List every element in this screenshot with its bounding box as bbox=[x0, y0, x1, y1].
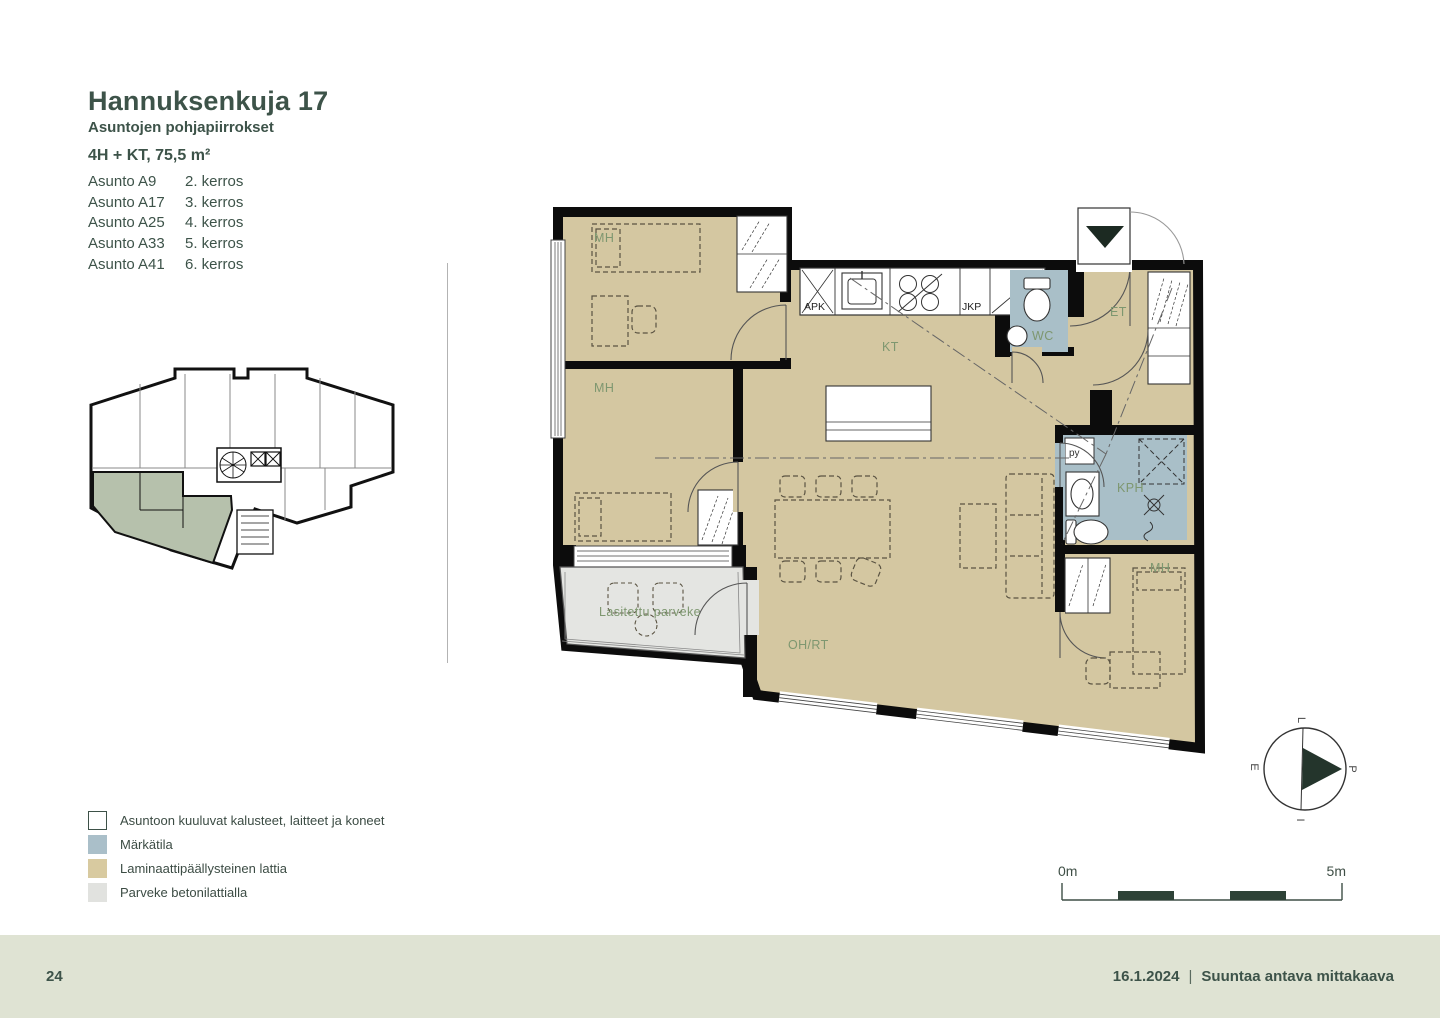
footer-date: 16.1.2024 bbox=[1113, 968, 1180, 985]
legend-item: Parveke betonilattialla bbox=[88, 880, 385, 904]
apartment-name: Asunto A33 bbox=[88, 234, 185, 255]
page-title: Hannuksenkuja 17 bbox=[88, 86, 328, 117]
hall-wardrobe bbox=[1148, 272, 1190, 384]
apartment-list: Asunto A9 2. kerros Asunto A17 3. kerros… bbox=[88, 172, 243, 276]
footer-note: Suuntaa antava mittakaava bbox=[1201, 968, 1394, 985]
footer: 24 16.1.2024 | Suuntaa antava mittakaava bbox=[0, 935, 1440, 1018]
apartment-type: 4H + KT, 75,5 m² bbox=[88, 147, 210, 165]
apartment-list-item: Asunto A33 5. kerros bbox=[88, 234, 243, 255]
room-label-et: ET bbox=[1110, 305, 1127, 319]
scale-bar: 0m 5m bbox=[1052, 858, 1352, 904]
apartment-floor: 4. kerros bbox=[185, 213, 243, 234]
legend-label: Laminaattipäällysteinen lattia bbox=[120, 861, 287, 876]
scale-end-label: 5m bbox=[1327, 863, 1346, 879]
legend: Asuntoon kuuluvat kalusteet, laitteet ja… bbox=[88, 808, 385, 904]
apartment-name: Asunto A17 bbox=[88, 193, 185, 214]
legend-item: Laminaattipäällysteinen lattia bbox=[88, 856, 385, 880]
mh2-wardrobe bbox=[698, 490, 738, 545]
room-label-mh1: MH bbox=[594, 231, 614, 245]
mh1-wardrobe bbox=[737, 216, 787, 292]
window-west bbox=[551, 240, 565, 438]
legend-label: Asuntoon kuuluvat kalusteet, laitteet ja… bbox=[120, 813, 385, 828]
page-number: 24 bbox=[46, 968, 63, 985]
floor-plan: MH MH KT WC ET KPH MH OH/RT APK JKP py L… bbox=[550, 200, 1210, 755]
compass-south-label: E bbox=[1248, 763, 1260, 770]
room-label-mh2: MH bbox=[594, 381, 614, 395]
building-overview-plan bbox=[85, 360, 400, 578]
legend-swatch-fixtures bbox=[88, 811, 107, 830]
legend-swatch-wet-room bbox=[88, 835, 107, 854]
room-label-ohrt: OH/RT bbox=[788, 638, 829, 652]
room-label-kph: KPH bbox=[1117, 481, 1144, 495]
apartment-list-item: Asunto A25 4. kerros bbox=[88, 213, 243, 234]
apartment-name: Asunto A25 bbox=[88, 213, 185, 234]
compass-icon: P L E I bbox=[1245, 712, 1375, 830]
apartment-floor: 3. kerros bbox=[185, 193, 243, 214]
compass-north-label: P bbox=[1346, 765, 1358, 772]
room-label-mh3: MH bbox=[1150, 561, 1170, 575]
column-divider bbox=[447, 263, 448, 663]
legend-swatch-balcony bbox=[88, 883, 107, 902]
label-jkp: JKP bbox=[962, 301, 981, 313]
kitchen-counter bbox=[800, 268, 1045, 315]
apartment-floor: 6. kerros bbox=[185, 255, 243, 276]
label-py: py bbox=[1069, 448, 1080, 459]
room-label-kt: KT bbox=[882, 340, 899, 354]
label-apk: APK bbox=[804, 301, 825, 313]
compass-west-label: L bbox=[1295, 717, 1307, 723]
legend-item: Asuntoon kuuluvat kalusteet, laitteet ja… bbox=[88, 808, 385, 832]
legend-label: Parveke betonilattialla bbox=[120, 885, 247, 900]
window-balcony-wall bbox=[574, 546, 732, 567]
apartment-list-item: Asunto A9 2. kerros bbox=[88, 172, 243, 193]
legend-label: Märkätila bbox=[120, 837, 173, 852]
mh3-closet bbox=[1065, 558, 1110, 613]
apartment-name: Asunto A9 bbox=[88, 172, 185, 193]
apartment-list-item: Asunto A17 3. kerros bbox=[88, 193, 243, 214]
kitchen-island bbox=[826, 386, 931, 441]
room-label-wc: WC bbox=[1032, 329, 1054, 343]
legend-item: Märkätila bbox=[88, 832, 385, 856]
wc-sink-icon bbox=[1007, 326, 1027, 346]
compass-east-label: I bbox=[1294, 818, 1306, 821]
label-balcony: Lasitettu parveke bbox=[599, 605, 701, 619]
legend-swatch-laminate bbox=[88, 859, 107, 878]
apartment-floor: 5. kerros bbox=[185, 234, 243, 255]
page-subtitle: Asuntojen pohjapiirrokset bbox=[88, 119, 274, 136]
scale-start-label: 0m bbox=[1058, 863, 1077, 879]
toilet-icon bbox=[1024, 278, 1050, 321]
apartment-floor: 2. kerros bbox=[185, 172, 243, 193]
footer-separator: | bbox=[1189, 968, 1193, 985]
apartment-name: Asunto A41 bbox=[88, 255, 185, 276]
apartment-list-item: Asunto A41 6. kerros bbox=[88, 255, 243, 276]
